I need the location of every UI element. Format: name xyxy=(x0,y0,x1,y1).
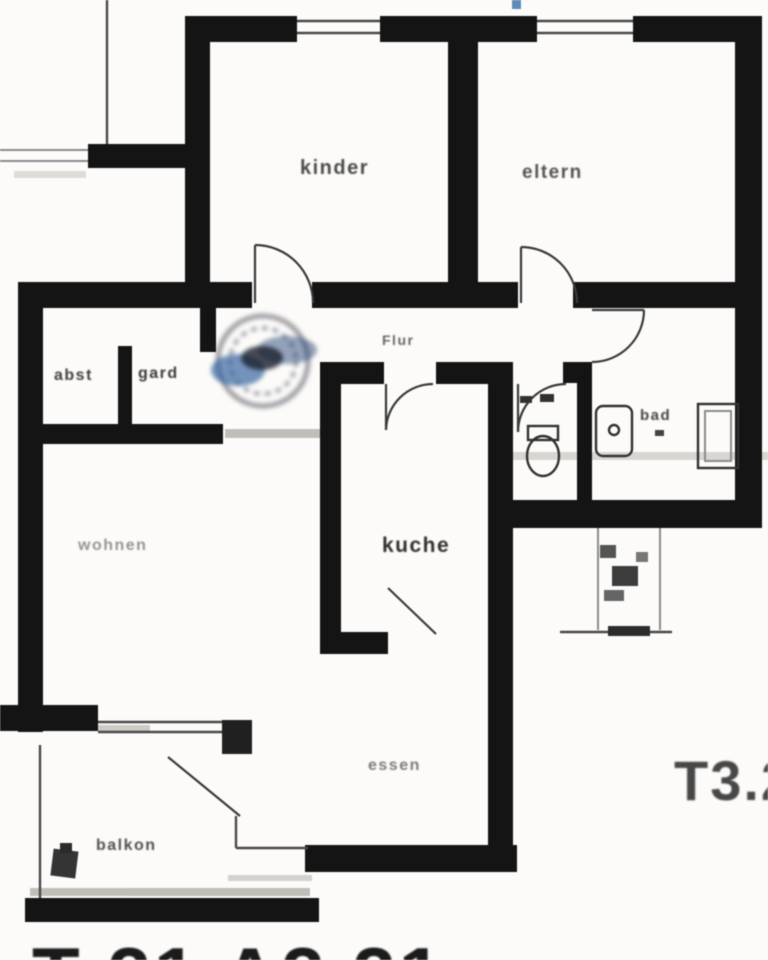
plan-code-bottom: T 21 A2 21 xyxy=(32,931,445,960)
room-label-gard: gard xyxy=(138,365,179,382)
plan-code-right: T3.2 xyxy=(674,749,768,812)
scan-streak xyxy=(497,452,768,460)
wall xyxy=(118,346,132,428)
annotation-mark xyxy=(600,545,616,558)
room-label-essen: essen xyxy=(368,757,421,774)
wall xyxy=(88,144,188,168)
annotation-mark xyxy=(612,566,638,586)
floor-plan-scan: kinder eltern abst gard Flur bad kuche w… xyxy=(0,0,768,960)
room-label-kueche: kuche xyxy=(382,534,450,557)
wall xyxy=(18,282,252,308)
ink-blob xyxy=(50,849,78,879)
room-label-balkon: balkon xyxy=(96,837,157,854)
room-label-flur: Flur xyxy=(382,332,414,348)
annotation-mark xyxy=(604,590,624,601)
room-label-abst: abst xyxy=(54,367,93,384)
wall xyxy=(448,30,478,306)
room-label-wohnen: wohnen xyxy=(77,537,147,554)
wall xyxy=(200,306,216,352)
wall xyxy=(185,16,210,306)
ink-blob xyxy=(60,843,72,853)
room-label-kinder: kinder xyxy=(300,157,369,179)
stamp-smudge xyxy=(241,346,283,370)
scan-streak xyxy=(225,429,325,438)
shelf-mark xyxy=(520,396,532,403)
scan-streak xyxy=(30,888,310,896)
room-label-bad: bad xyxy=(640,407,671,424)
room-label-eltern: eltern xyxy=(522,162,583,183)
door-mark xyxy=(222,720,252,754)
wall xyxy=(500,500,762,528)
scan-streak xyxy=(228,875,312,881)
wall xyxy=(195,16,297,42)
threshold-mark xyxy=(608,626,650,636)
wall xyxy=(320,362,341,654)
wall xyxy=(25,898,319,922)
wall xyxy=(573,282,762,308)
wall xyxy=(305,845,517,872)
blue-dot-mark xyxy=(512,0,521,9)
scan-streak xyxy=(14,171,86,178)
wall xyxy=(0,705,98,731)
wall xyxy=(18,282,43,732)
tap-mark xyxy=(655,430,664,436)
wall xyxy=(488,362,513,870)
wall xyxy=(320,632,388,654)
wall xyxy=(577,362,592,507)
shelf-mark xyxy=(540,394,554,402)
annotation-mark xyxy=(636,552,648,562)
wall xyxy=(312,282,518,308)
